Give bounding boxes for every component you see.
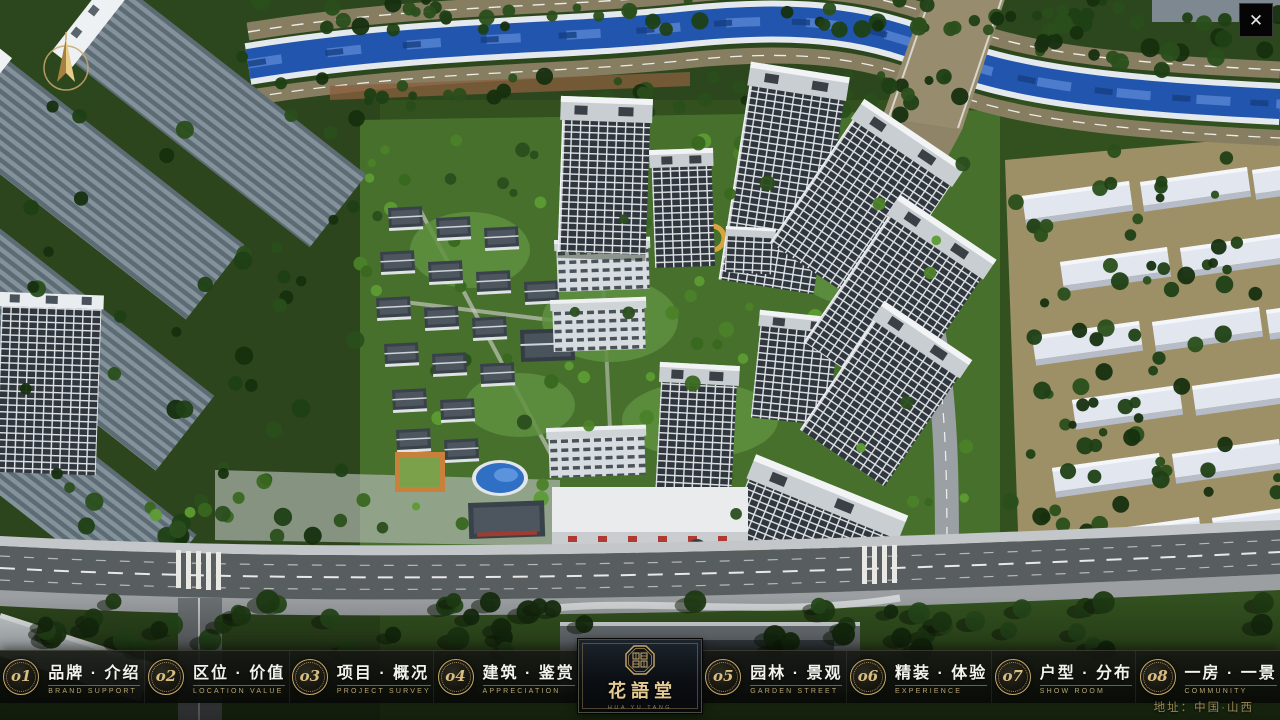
- nav-number-badge: o1: [3, 659, 39, 695]
- nav-number: o8: [1147, 667, 1167, 685]
- nav-item-room-scene[interactable]: o8 一房 · 一景COMMUNITY: [1136, 651, 1280, 703]
- sales-presentation-window: ✕ o1 品牌 · 介绍BRAND SUPPORT o2 区位 · 价值LOCA…: [0, 0, 1280, 720]
- nav-number: o3: [300, 667, 320, 685]
- nav-sublabel: EXPERIENCE: [895, 685, 987, 695]
- nav-label: 区位 · 价值: [193, 659, 285, 683]
- nav-number: o4: [445, 667, 465, 685]
- nav-item-garden-landscape[interactable]: o5 园林 · 景观GARDEN STREET: [702, 651, 847, 703]
- project-address: 地址：中国·山西: [1154, 699, 1254, 715]
- nav-item-brand-intro[interactable]: o1 品牌 · 介绍BRAND SUPPORT: [0, 651, 145, 703]
- kindergarten: [395, 452, 445, 492]
- nav-label: 建筑 · 鉴赏: [483, 659, 575, 683]
- nav-sublabel: PROJECT SURVEY: [337, 685, 431, 695]
- swimming-pool: [472, 460, 528, 496]
- nav-sublabel: BRAND SUPPORT: [48, 685, 140, 695]
- nav-sublabel: SHOW ROOM: [1040, 685, 1132, 695]
- nav-label: 户型 · 分布: [1040, 659, 1132, 683]
- nav-label: 精装 · 体验: [895, 659, 987, 683]
- nav-sublabel: COMMUNITY: [1185, 685, 1277, 695]
- nav-label: 一房 · 一景: [1185, 659, 1277, 683]
- nav-number: o5: [713, 667, 733, 685]
- nav-number-badge: o5: [705, 659, 741, 695]
- project-logo-title: 花語堂: [603, 677, 677, 703]
- entrance-gate: [468, 500, 545, 539]
- nav-number: o2: [156, 667, 176, 685]
- nav-number: o1: [11, 667, 31, 685]
- nav-number-badge: o7: [995, 659, 1031, 695]
- nav-item-floorplan[interactable]: o7 户型 · 分布SHOW ROOM: [992, 651, 1137, 703]
- aerial-masterplan-render: [0, 0, 1280, 720]
- nav-number: o6: [858, 667, 878, 685]
- nav-item-architecture[interactable]: o4 建筑 · 鉴赏APPRECIATION: [434, 651, 578, 703]
- nav-label: 项目 · 概况: [337, 659, 429, 683]
- nav-number-badge: o6: [850, 659, 886, 695]
- nav-sublabel: LOCATION VALUE: [193, 685, 285, 695]
- logo-panel[interactable]: 花語堂 HUA YU TANG: [578, 639, 702, 713]
- nav-number: o7: [1003, 667, 1023, 685]
- nav-label: 品牌 · 介绍: [48, 659, 140, 683]
- nav-number-badge: o2: [148, 659, 184, 695]
- nav-number-badge: o8: [1140, 659, 1176, 695]
- close-icon: ✕: [1249, 12, 1263, 29]
- nav-item-project-overview[interactable]: o3 项目 · 概况PROJECT SURVEY: [290, 651, 435, 703]
- nav-label: 园林 · 景观: [750, 659, 842, 683]
- bottom-navigation-bar: o1 品牌 · 介绍BRAND SUPPORT o2 区位 · 价值LOCATI…: [0, 650, 1280, 703]
- nav-number-badge: o3: [292, 659, 328, 695]
- nav-number-badge: o4: [438, 659, 474, 695]
- close-button[interactable]: ✕: [1239, 3, 1273, 37]
- nav-item-interior-experience[interactable]: o6 精装 · 体验EXPERIENCE: [847, 651, 992, 703]
- project-logo-subtitle: HUA YU TANG: [608, 705, 672, 711]
- nav-sublabel: APPRECIATION: [483, 685, 575, 695]
- logo-seal-icon: [624, 644, 656, 676]
- compass-north-icon: [38, 30, 94, 100]
- nav-sublabel: GARDEN STREET: [750, 685, 842, 695]
- nav-item-location-value[interactable]: o2 区位 · 价值LOCATION VALUE: [145, 651, 290, 703]
